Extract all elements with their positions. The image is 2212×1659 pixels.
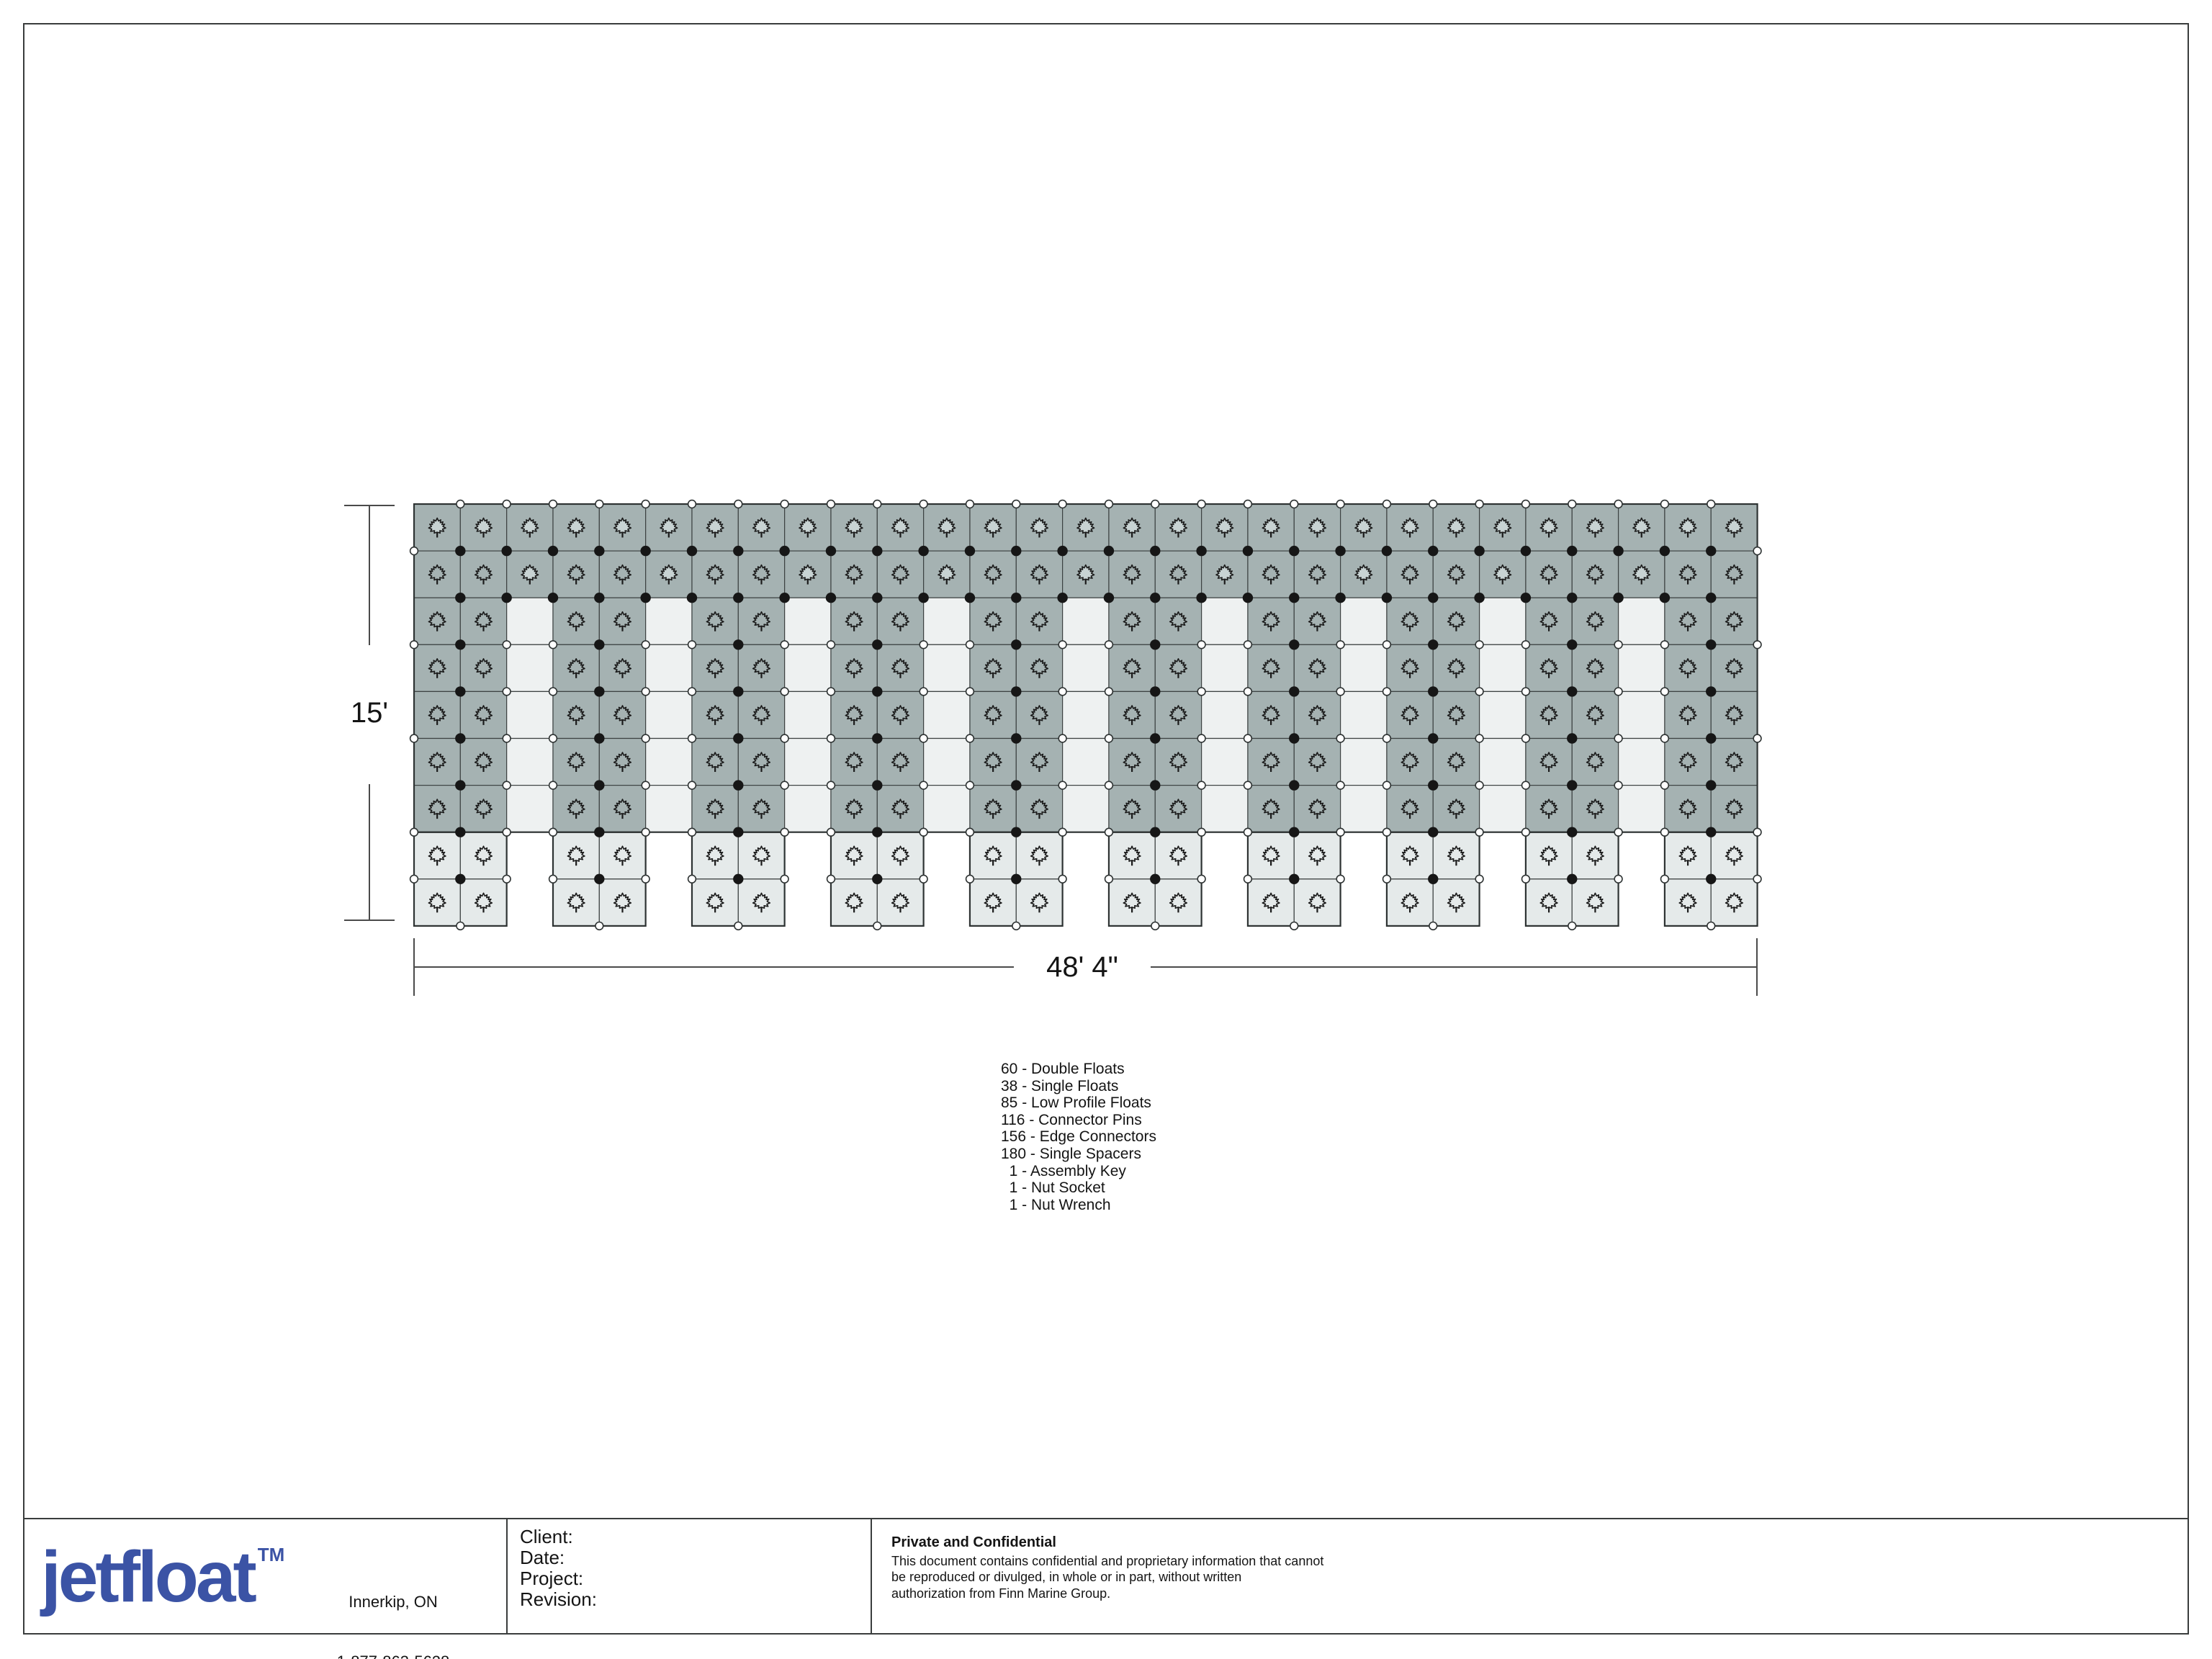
confidential-line-1: This document contains confidential and … xyxy=(891,1553,1482,1570)
parts-list-item: 156 - Edge Connectors xyxy=(1001,1128,1156,1146)
parts-list-item: 180 - Single Spacers xyxy=(1001,1146,1156,1163)
parts-list-item: 116 - Connector Pins xyxy=(1001,1112,1156,1129)
width-dim-cap-right xyxy=(1756,938,1758,996)
contact-city: Innerkip, ON xyxy=(252,1592,534,1612)
confidential-line-2: be reproduced or divulged, in whole or i… xyxy=(891,1569,1482,1586)
width-dim-label: 48' 4" xyxy=(1014,951,1151,983)
parts-list-item: 60 - Double Floats xyxy=(1001,1061,1156,1078)
height-dim-cap-bottom xyxy=(344,920,395,921)
parts-list-item: 1 - Assembly Key xyxy=(1001,1163,1156,1180)
height-dim-line-lower xyxy=(369,784,370,921)
confidential-notice: Private and Confidential This document c… xyxy=(891,1534,1482,1601)
project-fields: Client: Date: Project: Revision: xyxy=(520,1527,597,1610)
height-dim-label: 15' xyxy=(333,697,405,729)
parts-list-item: 85 - Low Profile Floats xyxy=(1001,1094,1156,1112)
height-dim-line-upper xyxy=(369,505,370,645)
field-date: Date: xyxy=(520,1547,597,1568)
field-revision: Revision: xyxy=(520,1589,597,1610)
titleblock-divider-2 xyxy=(871,1519,872,1633)
titleblock-top-line xyxy=(23,1518,2188,1519)
jetfloat-logo-text: jetfloat xyxy=(41,1537,254,1617)
parts-list-item: 1 - Nut Wrench xyxy=(1001,1197,1156,1214)
float-layout-diagram xyxy=(405,495,1766,935)
confidential-heading: Private and Confidential xyxy=(891,1534,1482,1551)
contact-phone: 1-877-863-5628 xyxy=(252,1652,534,1659)
field-project: Project: xyxy=(520,1568,597,1589)
width-dim-line-right xyxy=(1151,966,1757,968)
confidential-line-3: authorization from Finn Marine Group. xyxy=(891,1586,1482,1602)
field-client: Client: xyxy=(520,1527,597,1547)
parts-list-item: 1 - Nut Socket xyxy=(1001,1179,1156,1197)
drawing-sheet: 15' 48' 4" 60 - Double Floats38 - Single… xyxy=(0,0,2212,1659)
parts-list-item: 38 - Single Floats xyxy=(1001,1078,1156,1095)
jetfloat-logo: jetfloatTM xyxy=(41,1539,284,1615)
contact-block: Innerkip, ON 1-877-863-5628 info@jetfloa… xyxy=(252,1552,534,1659)
parts-list: 60 - Double Floats38 - Single Floats85 -… xyxy=(1001,1061,1156,1213)
width-dim-line-left xyxy=(414,966,1014,968)
